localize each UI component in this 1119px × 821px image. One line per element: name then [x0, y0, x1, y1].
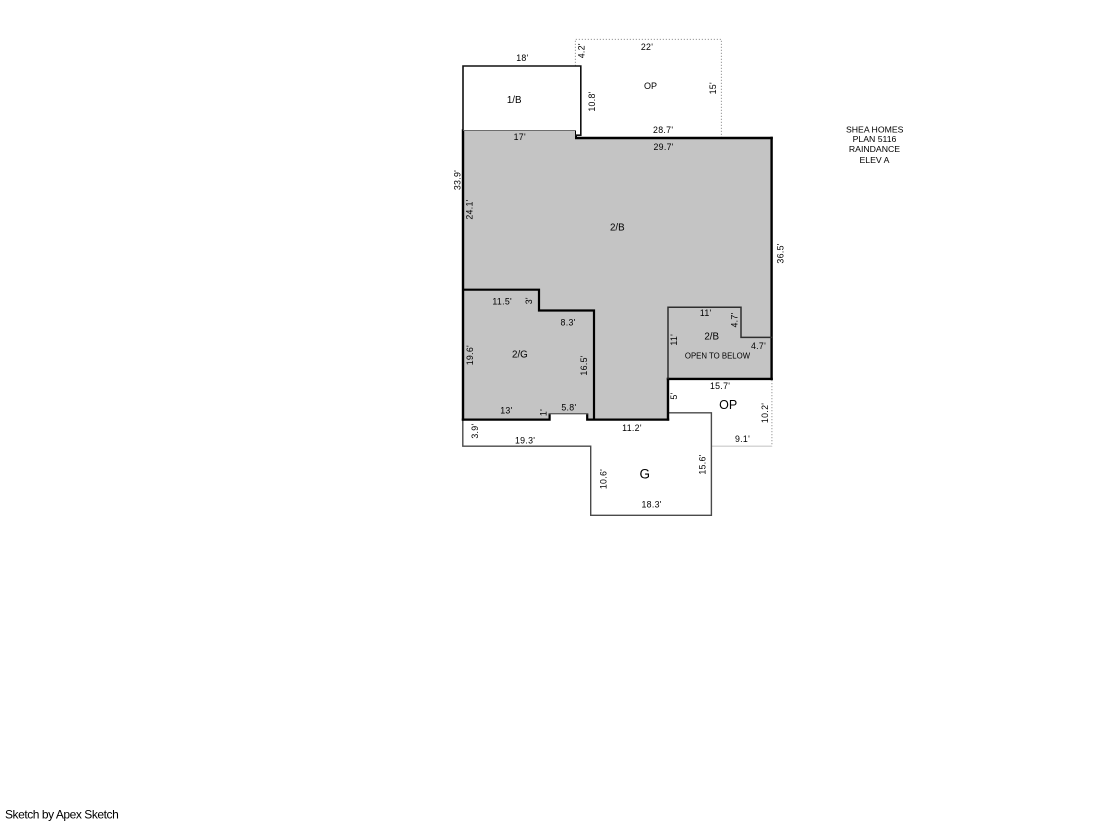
- svg-text:22': 22': [641, 42, 653, 52]
- svg-text:36.5': 36.5': [775, 243, 785, 263]
- svg-text:24.1': 24.1': [465, 199, 475, 219]
- svg-text:2/G: 2/G: [512, 349, 528, 360]
- svg-text:4.7': 4.7': [751, 341, 766, 351]
- svg-text:33.9': 33.9': [452, 170, 462, 190]
- svg-text:PLAN 5116: PLAN 5116: [853, 134, 897, 144]
- svg-text:11': 11': [700, 308, 712, 318]
- svg-text:SHEA HOMES: SHEA HOMES: [846, 124, 904, 134]
- svg-text:OPEN TO BELOW: OPEN TO BELOW: [685, 352, 751, 361]
- svg-text:11.5': 11.5': [492, 297, 512, 307]
- svg-text:3.9': 3.9': [470, 424, 480, 439]
- svg-text:15.7': 15.7': [710, 381, 730, 391]
- svg-text:2/B: 2/B: [610, 222, 625, 233]
- svg-text:19.6': 19.6': [465, 345, 475, 365]
- svg-text:5': 5': [669, 392, 679, 399]
- svg-text:3': 3': [524, 297, 534, 304]
- svg-text:16.5': 16.5': [579, 355, 589, 375]
- svg-text:10.6': 10.6': [599, 469, 609, 489]
- svg-text:10.2': 10.2': [760, 403, 770, 423]
- svg-text:ELEV A: ELEV A: [860, 155, 890, 165]
- svg-text:11': 11': [669, 334, 679, 346]
- svg-text:11.2': 11.2': [622, 423, 642, 433]
- svg-text:OP: OP: [644, 81, 657, 91]
- svg-text:15': 15': [708, 82, 718, 94]
- svg-text:5.8': 5.8': [561, 402, 576, 412]
- svg-text:18.3': 18.3': [641, 500, 661, 510]
- svg-text:28.7': 28.7': [653, 125, 673, 135]
- svg-text:OP: OP: [719, 398, 737, 412]
- svg-text:RAINDANCE: RAINDANCE: [849, 144, 900, 154]
- svg-text:1': 1': [539, 409, 549, 416]
- svg-text:19.3': 19.3': [515, 435, 535, 445]
- svg-text:15.6': 15.6': [698, 454, 708, 474]
- svg-text:18': 18': [516, 53, 528, 63]
- svg-text:Sketch by Apex Sketch: Sketch by Apex Sketch: [5, 808, 118, 821]
- svg-text:2/B: 2/B: [704, 331, 719, 342]
- svg-text:1/B: 1/B: [507, 95, 522, 106]
- svg-text:8.3': 8.3': [561, 317, 576, 327]
- svg-text:13': 13': [500, 405, 512, 415]
- svg-text:17': 17': [514, 132, 526, 142]
- svg-text:4.7': 4.7': [730, 312, 740, 327]
- svg-text:10.8': 10.8': [587, 91, 597, 111]
- svg-text:29.7': 29.7': [653, 142, 673, 152]
- svg-text:9.1': 9.1': [735, 434, 750, 444]
- svg-text:4.2': 4.2': [577, 43, 587, 58]
- svg-text:G: G: [639, 467, 650, 482]
